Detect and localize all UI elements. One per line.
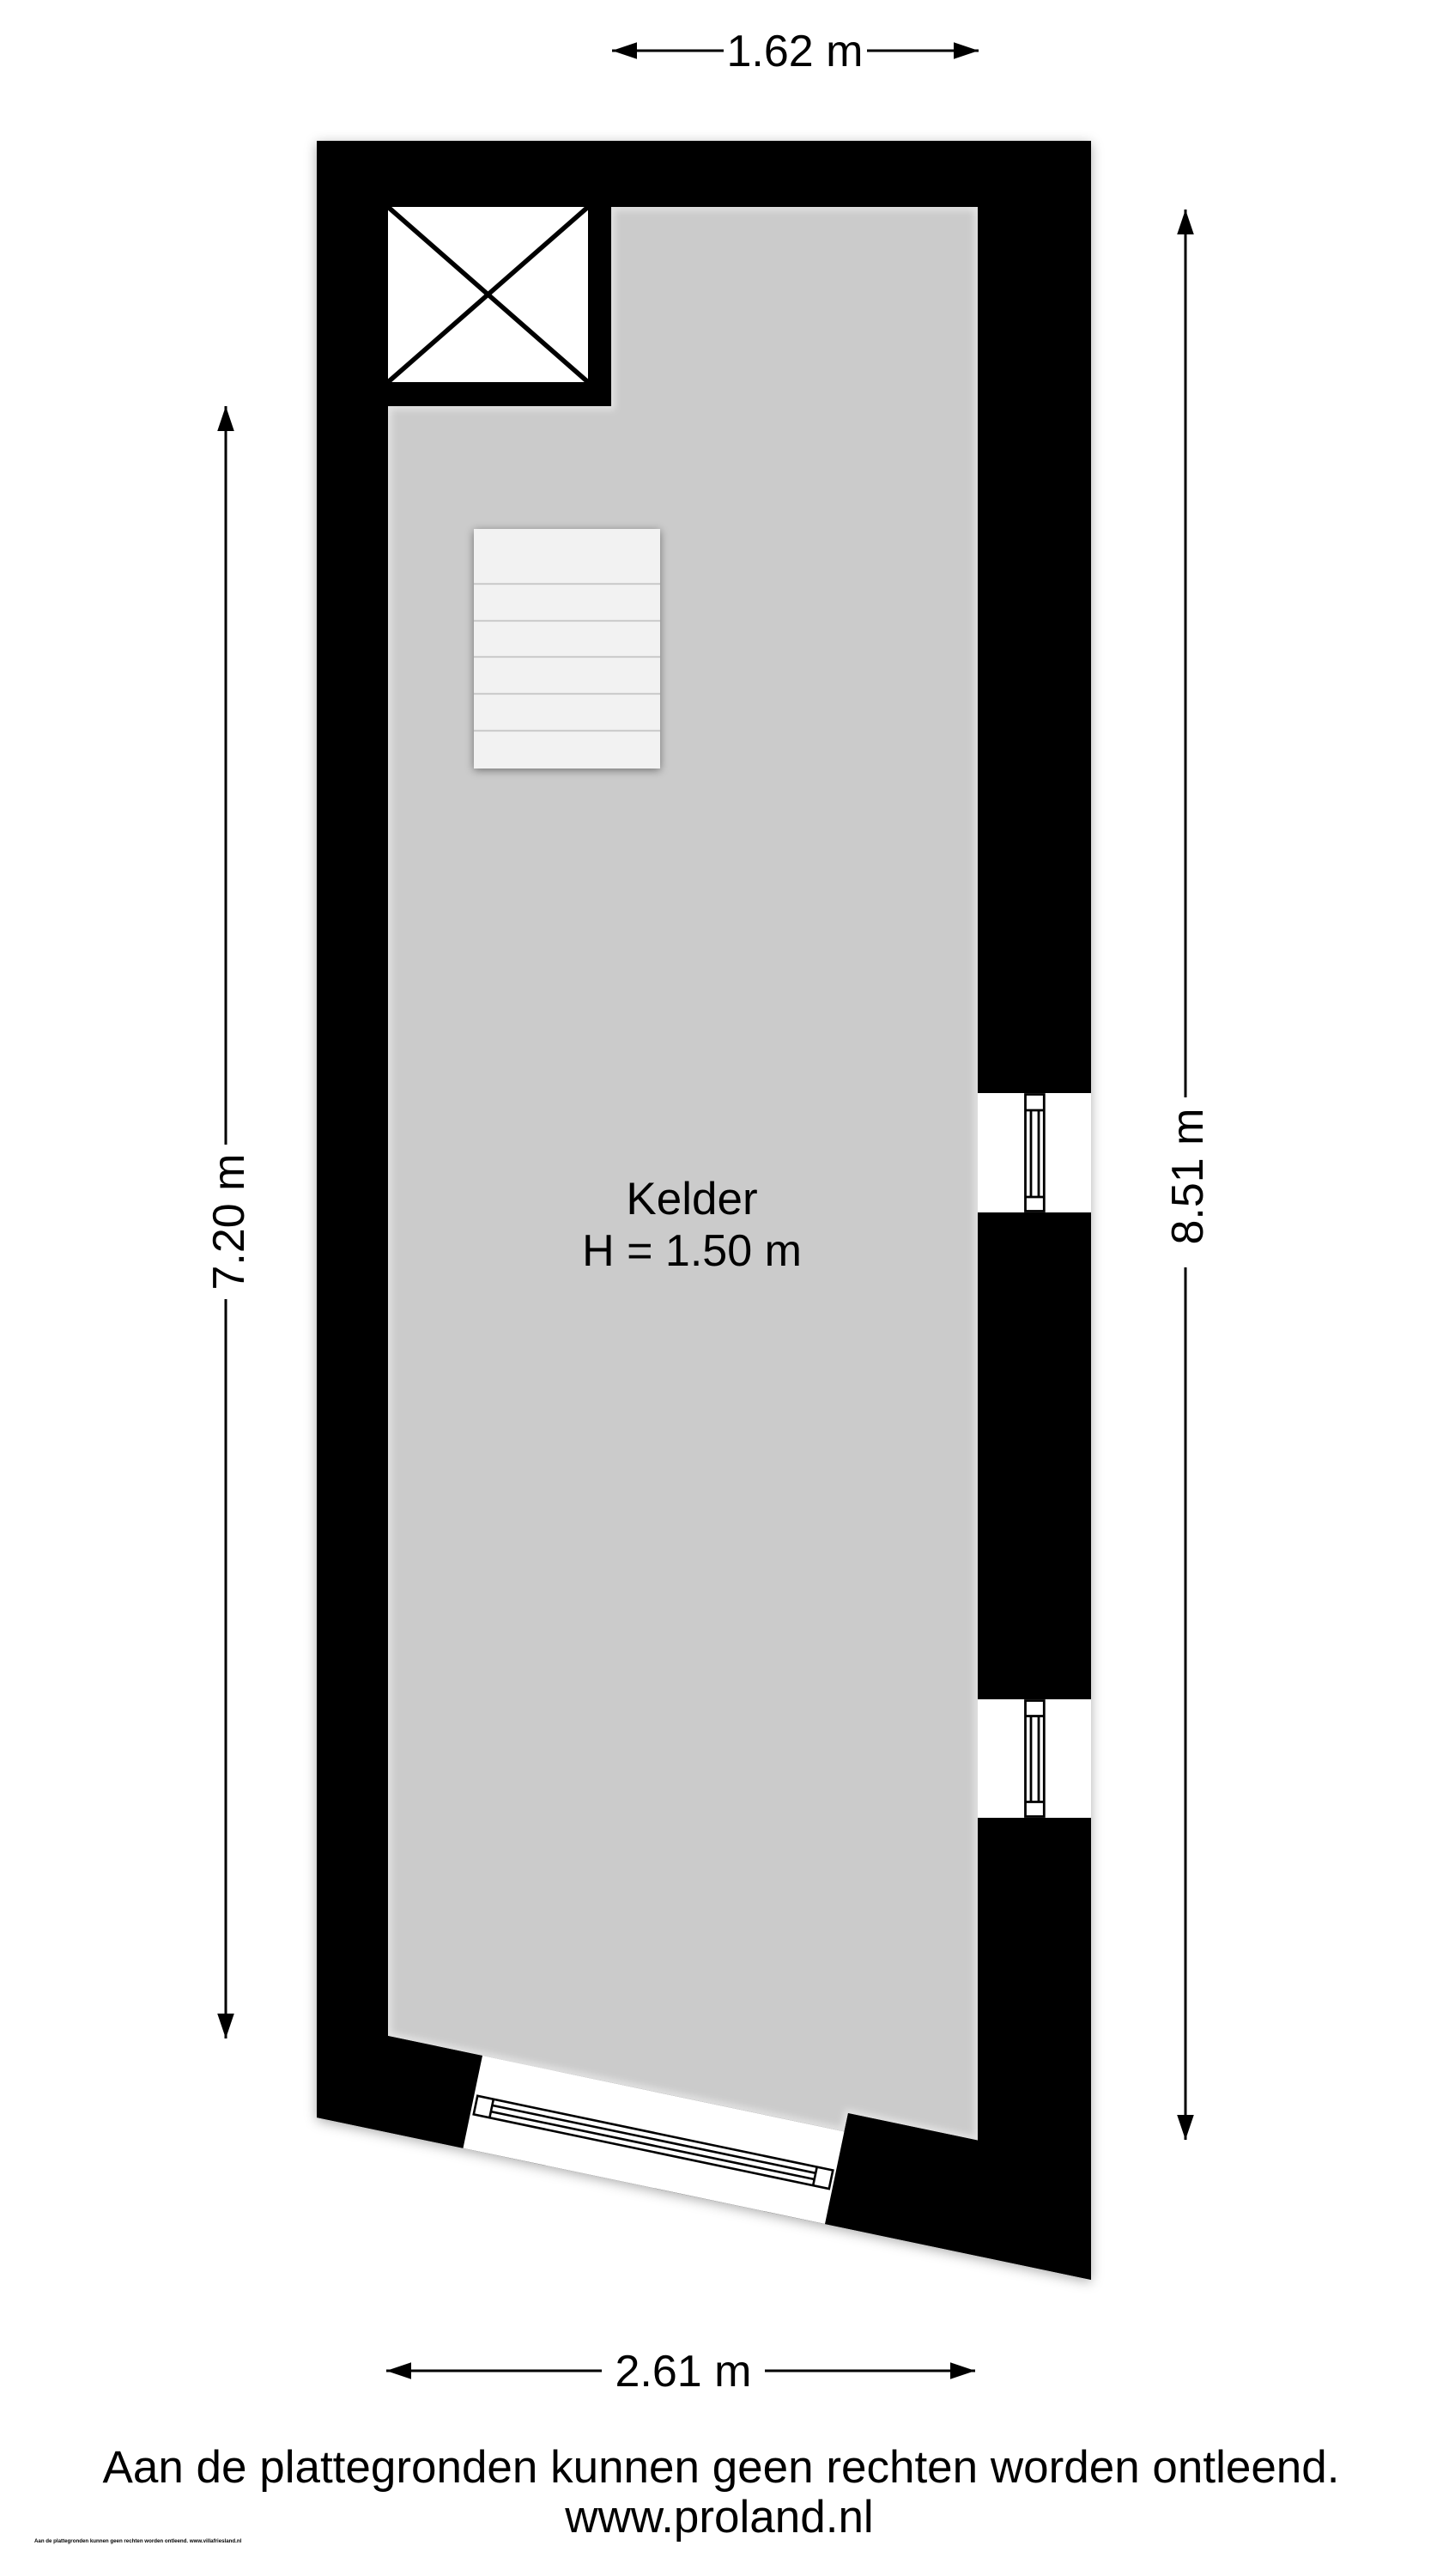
svg-text:Kelder: Kelder xyxy=(626,1174,757,1224)
svg-text:7.20 m: 7.20 m xyxy=(204,1154,254,1291)
svg-text:2.61 m: 2.61 m xyxy=(615,2347,752,2397)
svg-text:Aan de plattegronden kunnen ge: Aan de plattegronden kunnen geen rechten… xyxy=(103,2442,1340,2493)
svg-text:Aan de plattegronden kunnen ge: Aan de plattegronden kunnen geen rechten… xyxy=(34,2538,242,2544)
svg-text:www.proland.nl: www.proland.nl xyxy=(564,2492,873,2543)
svg-text:1.62 m: 1.62 m xyxy=(727,27,864,76)
svg-text:8.51 m: 8.51 m xyxy=(1163,1109,1213,1245)
svg-text:H = 1.50 m: H = 1.50 m xyxy=(582,1226,802,1276)
